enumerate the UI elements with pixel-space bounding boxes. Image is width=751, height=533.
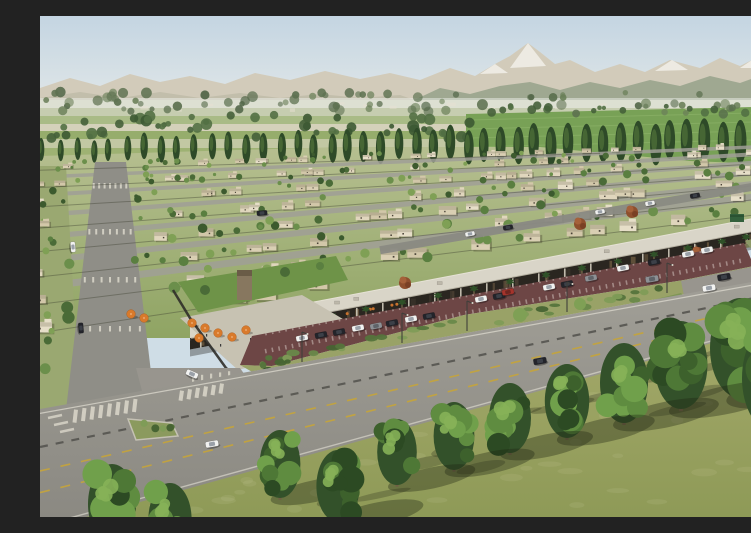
crosswalk-stripe: [109, 404, 111, 417]
yard-tree: [340, 168, 346, 174]
aerial-render: Aerial 3D architectural rendering of a d…: [40, 16, 751, 517]
yard-tree: [131, 256, 139, 264]
yard-tree: [476, 196, 483, 203]
yard-tree: [221, 189, 227, 195]
yard-tree: [549, 172, 553, 176]
yard-tree: [49, 328, 55, 334]
yard-tree: [725, 172, 734, 181]
yard-tree: [163, 160, 168, 165]
person: [190, 338, 191, 341]
yard-tree: [143, 171, 149, 177]
crosswalk-stripe: [89, 326, 91, 332]
yard-tree: [491, 185, 496, 190]
yard-tree: [310, 157, 316, 163]
yard-tree: [222, 247, 227, 252]
yard-tree: [293, 224, 299, 230]
yard-tree: [636, 163, 641, 168]
yard-tree: [148, 159, 153, 164]
crosswalk-stripe: [130, 229, 132, 235]
yard-tree: [599, 177, 607, 185]
yard-tree: [145, 165, 149, 169]
crosswalk-stripe: [134, 277, 136, 283]
yard-tree: [312, 153, 315, 156]
yard-tree: [42, 247, 49, 254]
yard-tree: [287, 184, 291, 188]
yard-tree: [571, 159, 575, 163]
crosswalk-stripe: [116, 229, 118, 235]
person: [206, 334, 207, 337]
crosswalk-stripe: [109, 326, 111, 332]
crosswalk-stripe: [95, 229, 97, 235]
yard-tree: [278, 181, 282, 185]
yard-tree: [167, 207, 173, 213]
crosswalk-stripe: [123, 229, 125, 235]
yard-tree: [360, 249, 369, 258]
crosswalk-stripe: [93, 183, 95, 189]
yard-tree: [418, 207, 423, 212]
crosswalk-stripe: [75, 410, 77, 423]
yard-tree: [641, 168, 647, 174]
yard-tree: [326, 179, 333, 186]
yard-tree: [230, 249, 236, 255]
crosswalk-stripe: [88, 229, 90, 235]
yard-tree: [511, 153, 517, 159]
crosswalk-stripe: [129, 326, 131, 332]
crosswalk-stripe: [83, 408, 85, 421]
yard-tree: [148, 179, 154, 185]
yard-tree: [314, 216, 322, 224]
yard-tree: [519, 151, 524, 156]
crosswalk-stripe: [104, 183, 106, 189]
yard-tree: [55, 166, 60, 171]
yard-tree: [201, 210, 208, 217]
crosswalk-stripe: [205, 386, 207, 396]
crosswalk-stripe: [221, 384, 223, 394]
yard-tree: [70, 166, 73, 169]
yard-tree: [213, 173, 216, 176]
yard-tree: [398, 175, 405, 182]
yard-tree: [317, 177, 324, 184]
yard-tree: [288, 175, 293, 180]
crosswalk-stripe: [134, 399, 136, 412]
yard-tree: [694, 160, 701, 167]
yard-tree: [463, 162, 467, 166]
yard-tree: [204, 265, 212, 273]
crosswalk-stripe: [181, 391, 183, 401]
yard-tree: [408, 175, 412, 179]
crosswalk-stripe: [102, 229, 104, 235]
yard-tree: [739, 164, 745, 170]
yard-tree: [369, 152, 373, 156]
crosswalk-stripe: [197, 388, 199, 398]
yard-tree: [206, 250, 215, 259]
yard-tree: [145, 177, 149, 181]
yard-tree: [144, 253, 149, 258]
crosswalk-stripe: [84, 277, 86, 283]
yard-tree: [715, 170, 720, 175]
crosswalk-stripe: [119, 326, 121, 332]
yard-tree: [317, 232, 325, 240]
yard-tree: [480, 206, 488, 214]
crosswalk-stripe: [92, 277, 94, 283]
yard-tree: [134, 194, 138, 198]
yard-tree: [262, 162, 267, 167]
yard-tree: [233, 227, 240, 234]
yard-tree: [75, 178, 80, 183]
yard-tree: [387, 177, 394, 184]
crosswalk-stripe: [99, 326, 101, 332]
yard-tree: [179, 256, 189, 266]
yard-tree: [422, 252, 432, 262]
yard-tree: [61, 199, 66, 204]
yard-tree: [156, 158, 160, 162]
kiosk: [730, 214, 744, 222]
yard-tree: [422, 162, 427, 167]
yard-tree: [159, 257, 165, 263]
yard-tree: [283, 155, 287, 159]
yard-tree: [138, 216, 142, 220]
yard-tree: [530, 157, 537, 164]
crosswalk-stripe: [92, 407, 94, 420]
yard-tree: [168, 234, 177, 243]
crosswalk-stripe: [100, 405, 102, 418]
crosswalk-stripe: [109, 229, 111, 235]
crosswalk-stripe: [189, 389, 191, 399]
crosswalk-stripe: [109, 277, 111, 283]
crosswalk-stripe: [101, 277, 103, 283]
crosswalk-stripe: [117, 402, 119, 415]
crosswalk-stripe: [98, 183, 100, 189]
yard-tree: [62, 311, 74, 323]
yard-tree: [48, 236, 53, 241]
yard-tree: [442, 220, 451, 229]
yard-tree: [447, 167, 453, 173]
yard-tree: [216, 230, 223, 237]
yard-tree: [581, 170, 587, 176]
yard-tree: [339, 235, 344, 240]
yard-tree: [712, 210, 719, 217]
yard-tree: [320, 194, 326, 200]
yard-tree: [445, 191, 451, 197]
yard-tree: [199, 176, 205, 182]
yard-tree: [82, 159, 87, 164]
crosswalk-stripe: [139, 326, 141, 332]
yard-tree: [703, 169, 711, 177]
crosswalk-stripe: [117, 277, 119, 283]
yard-tree: [174, 158, 179, 163]
yard-tree: [265, 216, 274, 225]
yard-tree: [482, 153, 486, 157]
yard-tree: [611, 163, 616, 168]
yard-tree: [684, 217, 691, 224]
yard-tree: [483, 235, 492, 244]
yard-tree: [548, 190, 554, 196]
yard-tree: [587, 168, 591, 172]
yard-tree: [174, 175, 180, 181]
yard-tree: [408, 189, 415, 196]
yard-tree: [64, 259, 74, 269]
yard-tree: [345, 256, 351, 262]
yard-tree: [642, 176, 649, 183]
yard-tree: [151, 189, 157, 195]
yard-tree: [322, 156, 325, 159]
yard-tree: [502, 191, 508, 197]
yard-tree: [189, 213, 195, 219]
yard-tree: [556, 159, 561, 164]
person: [220, 344, 221, 347]
yard-tree: [507, 181, 515, 189]
yard-tree: [629, 155, 635, 161]
yard-tree: [412, 163, 418, 169]
yard-tree: [603, 153, 609, 159]
yard-tree: [72, 160, 76, 164]
crosswalk-stripe: [126, 277, 128, 283]
yard-tree: [198, 223, 208, 233]
yard-tree: [411, 204, 417, 210]
yard-tree: [150, 174, 154, 178]
scene-svg: [40, 16, 751, 517]
yard-tree: [184, 178, 189, 183]
crosswalk-stripe: [126, 401, 128, 414]
yard-tree: [516, 234, 524, 242]
yard-tree: [430, 193, 437, 200]
yard-tree: [258, 224, 263, 229]
yard-tree: [190, 174, 196, 180]
yard-tree: [207, 163, 212, 168]
yard-tree: [536, 200, 545, 209]
yard-tree: [480, 177, 487, 184]
crosswalk-stripe: [213, 385, 215, 395]
yard-tree: [542, 188, 546, 192]
yard-tree: [236, 174, 242, 180]
yard-tree: [552, 211, 558, 217]
yard-tree: [377, 151, 382, 156]
yard-tree: [623, 170, 631, 178]
